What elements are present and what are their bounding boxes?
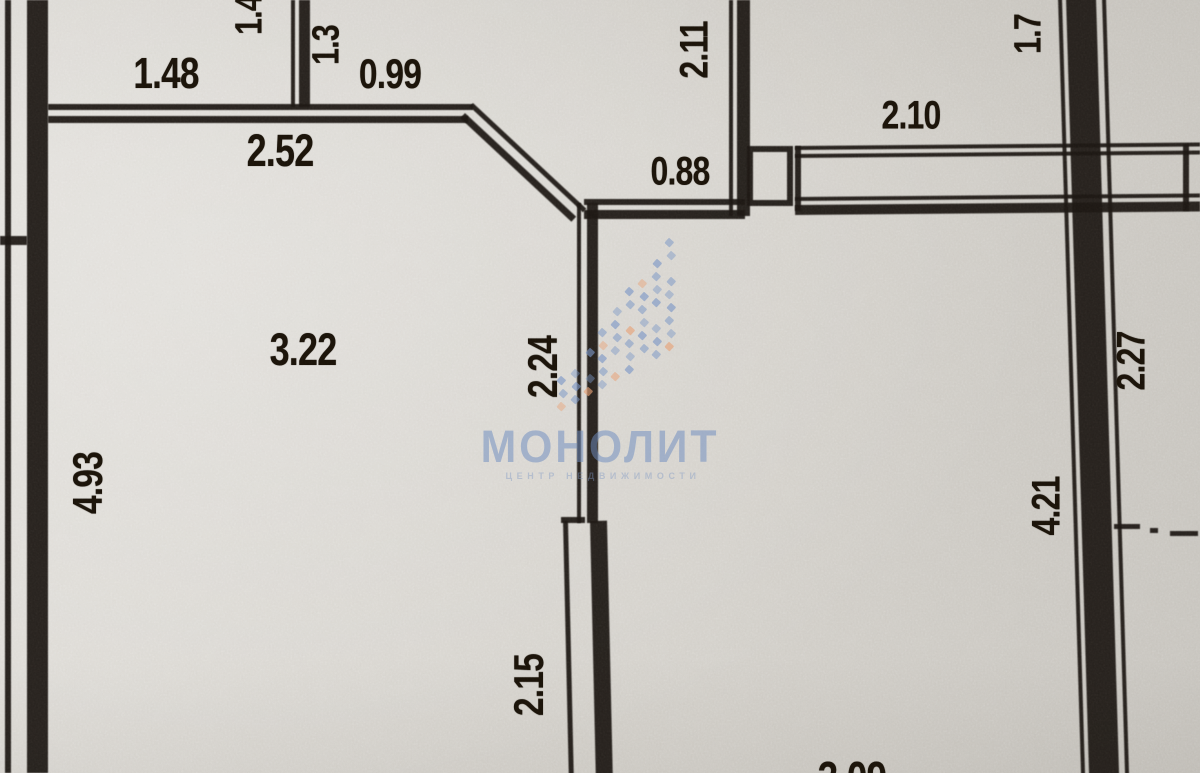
center-wall-lower-thin [563, 521, 574, 773]
corridor-wall-bottom-a [795, 193, 1200, 201]
dimension-label: 2.27 [1110, 331, 1155, 390]
dimension-label: 0.88 [650, 150, 709, 195]
axis-dash-a [1114, 524, 1140, 529]
dimension-label: 4.21 [1025, 476, 1070, 535]
left-stub-wall [0, 236, 27, 245]
corridor-wall-left-jamb [795, 146, 801, 211]
left-wall-outer-line [5, 0, 11, 773]
center-wall-upper [587, 203, 598, 523]
plan-layer: 1.481.41.30.992.522.110.882.101.73.222.2… [0, 0, 1200, 773]
dimension-label: 2.11 [673, 21, 718, 78]
entry-wall-line-a [584, 199, 745, 205]
dimension-label: 0.99 [359, 50, 421, 98]
dimension-label: 2.24 [519, 336, 567, 398]
corridor-wall-top-b [795, 150, 1200, 158]
axis-dash-b [1170, 531, 1198, 536]
dimension-label: 2.10 [881, 94, 940, 139]
floorplan-photo: 1.481.41.30.992.522.110.882.101.73.222.2… [0, 0, 1200, 773]
dimension-label: 2.15 [505, 654, 553, 716]
dimension-label: 2.52 [247, 125, 314, 177]
axis-dash-dot [1150, 528, 1158, 533]
entry-wall-line-b [584, 210, 745, 219]
dimension-label: 3.22 [270, 324, 337, 376]
door-pier [747, 146, 793, 206]
corridor-wall-top-a [795, 142, 1200, 150]
diagonal-wall-line-a [470, 103, 587, 212]
diagonal-wall-line-b [460, 113, 576, 222]
corridor-wall-right-jamb [1183, 144, 1189, 211]
dimension-label: 1.4 [229, 0, 272, 35]
dimension-label: 3.09 [818, 751, 886, 773]
corridor-wall-bottom-b [795, 201, 1200, 215]
center-wall-lower [590, 521, 613, 773]
top-wall-line-a [48, 104, 473, 110]
center-wall-upper-thin [577, 203, 581, 523]
balcony-partition-thin [291, 0, 295, 107]
dimension-label: 1.7 [1008, 14, 1051, 54]
dimension-label: 1.3 [306, 25, 349, 65]
dimension-label: 4.93 [64, 452, 112, 514]
hall-wall-thin [729, 0, 733, 216]
top-wall-line-b [48, 116, 468, 123]
dimension-label: 1.48 [133, 49, 198, 99]
left-wall [27, 0, 48, 773]
